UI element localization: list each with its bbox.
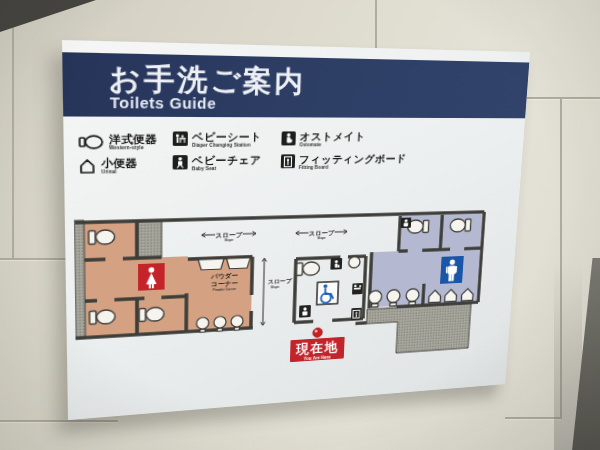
- slope-label-left: スロープ Slope: [202, 230, 256, 243]
- legend-en: Urinal: [101, 169, 137, 176]
- legend-jp: ベビーシート: [192, 131, 262, 142]
- photo-of-toilets-guide-sign: お手洗ご案内 Toilets Guide 洋式便器Western-style 小…: [0, 0, 600, 450]
- legend-en: Baby Seat: [192, 166, 261, 173]
- sign-header: お手洗ご案内 Toilets Guide: [62, 52, 529, 118]
- legend-item-baby-chair: ベビーチェアBaby Seat: [173, 155, 262, 173]
- toilet-icon: [89, 310, 115, 325]
- toilet-icon: [89, 230, 115, 245]
- fitting-board-icon: [281, 154, 295, 168]
- fitting-board-icon: [351, 308, 362, 320]
- legend: 洋式便器Western-style 小便器Urinal ベビーシートDiaper…: [77, 125, 517, 199]
- legend-jp: オストメイト: [300, 131, 366, 142]
- women-room-symbol: [138, 263, 165, 291]
- diaper-changing-icon: [352, 283, 363, 295]
- urinal-icons-round: [368, 288, 419, 307]
- powder-corner-label2: コーナー: [211, 279, 238, 288]
- sign-board: お手洗ご案内 Toilets Guide 洋式便器Western-style 小…: [62, 40, 530, 420]
- legend-en: Fitting Board: [299, 164, 406, 171]
- svg-text:Slope: Slope: [271, 286, 280, 290]
- page-subtitle: Toilets Guide: [110, 94, 217, 112]
- legend-jp: 洋式便器: [109, 134, 157, 146]
- wall-grout-line: [0, 420, 118, 422]
- floor-plan: パウダー コーナー Powder Corner: [74, 198, 496, 387]
- western-toilet-icon: [77, 134, 104, 151]
- urinal-icons-pentagon: [429, 288, 474, 302]
- svg-text:Slope: Slope: [224, 238, 233, 242]
- legend-item-diaper-changing: ベビーシートDiaper Changing Station: [173, 131, 262, 149]
- legend-item-urinal: 小便器Urinal: [78, 158, 138, 176]
- ostomate-icon: [281, 131, 296, 145]
- legend-jp: フィッティングボード: [299, 153, 407, 165]
- wall-corner-shadow: [0, 0, 96, 32]
- legend-jp: 小便器: [101, 158, 137, 170]
- toilet-icon: [450, 219, 471, 232]
- baby-seat-icon: [299, 305, 311, 318]
- legend-item-ostomate: オストメイトOstomate: [281, 131, 365, 148]
- ostomate-icon: [330, 258, 342, 270]
- svg-text:You Are Here: You Are Here: [304, 354, 331, 361]
- slope-label-vertical: スロープ Slope: [261, 257, 294, 325]
- stool-icons: [196, 315, 243, 332]
- you-are-here-marker: 現在地 You Are Here: [290, 326, 345, 362]
- svg-text:Slope: Slope: [317, 236, 326, 240]
- wall-grout-line: [527, 97, 600, 99]
- urinal-icon: [78, 158, 97, 175]
- wall-grout-line: [375, 0, 377, 48]
- slope-label-center: スロープ Slope: [296, 228, 348, 240]
- legend-item-fitting-board: フィッティングボードFitting Board: [281, 153, 407, 171]
- baby-chair-icon: [173, 155, 188, 169]
- men-room-symbol: [440, 256, 464, 284]
- toilet-icon: [296, 262, 319, 276]
- toilet-icon: [139, 307, 164, 322]
- legend-item-western-toilet: 洋式便器Western-style: [77, 134, 157, 152]
- diaper-changing-icon: [173, 131, 188, 145]
- wheelchair-icon: [317, 281, 339, 304]
- legend-en: Western-style: [109, 145, 157, 152]
- legend-jp: ベビーチェア: [192, 155, 262, 167]
- svg-text:スロープ: スロープ: [268, 277, 293, 285]
- wall-grout-line: [12, 0, 14, 258]
- legend-en: Diaper Changing Station: [192, 143, 261, 149]
- baby-seat-icon: [401, 218, 412, 229]
- legend-en: Ostomate: [299, 142, 365, 148]
